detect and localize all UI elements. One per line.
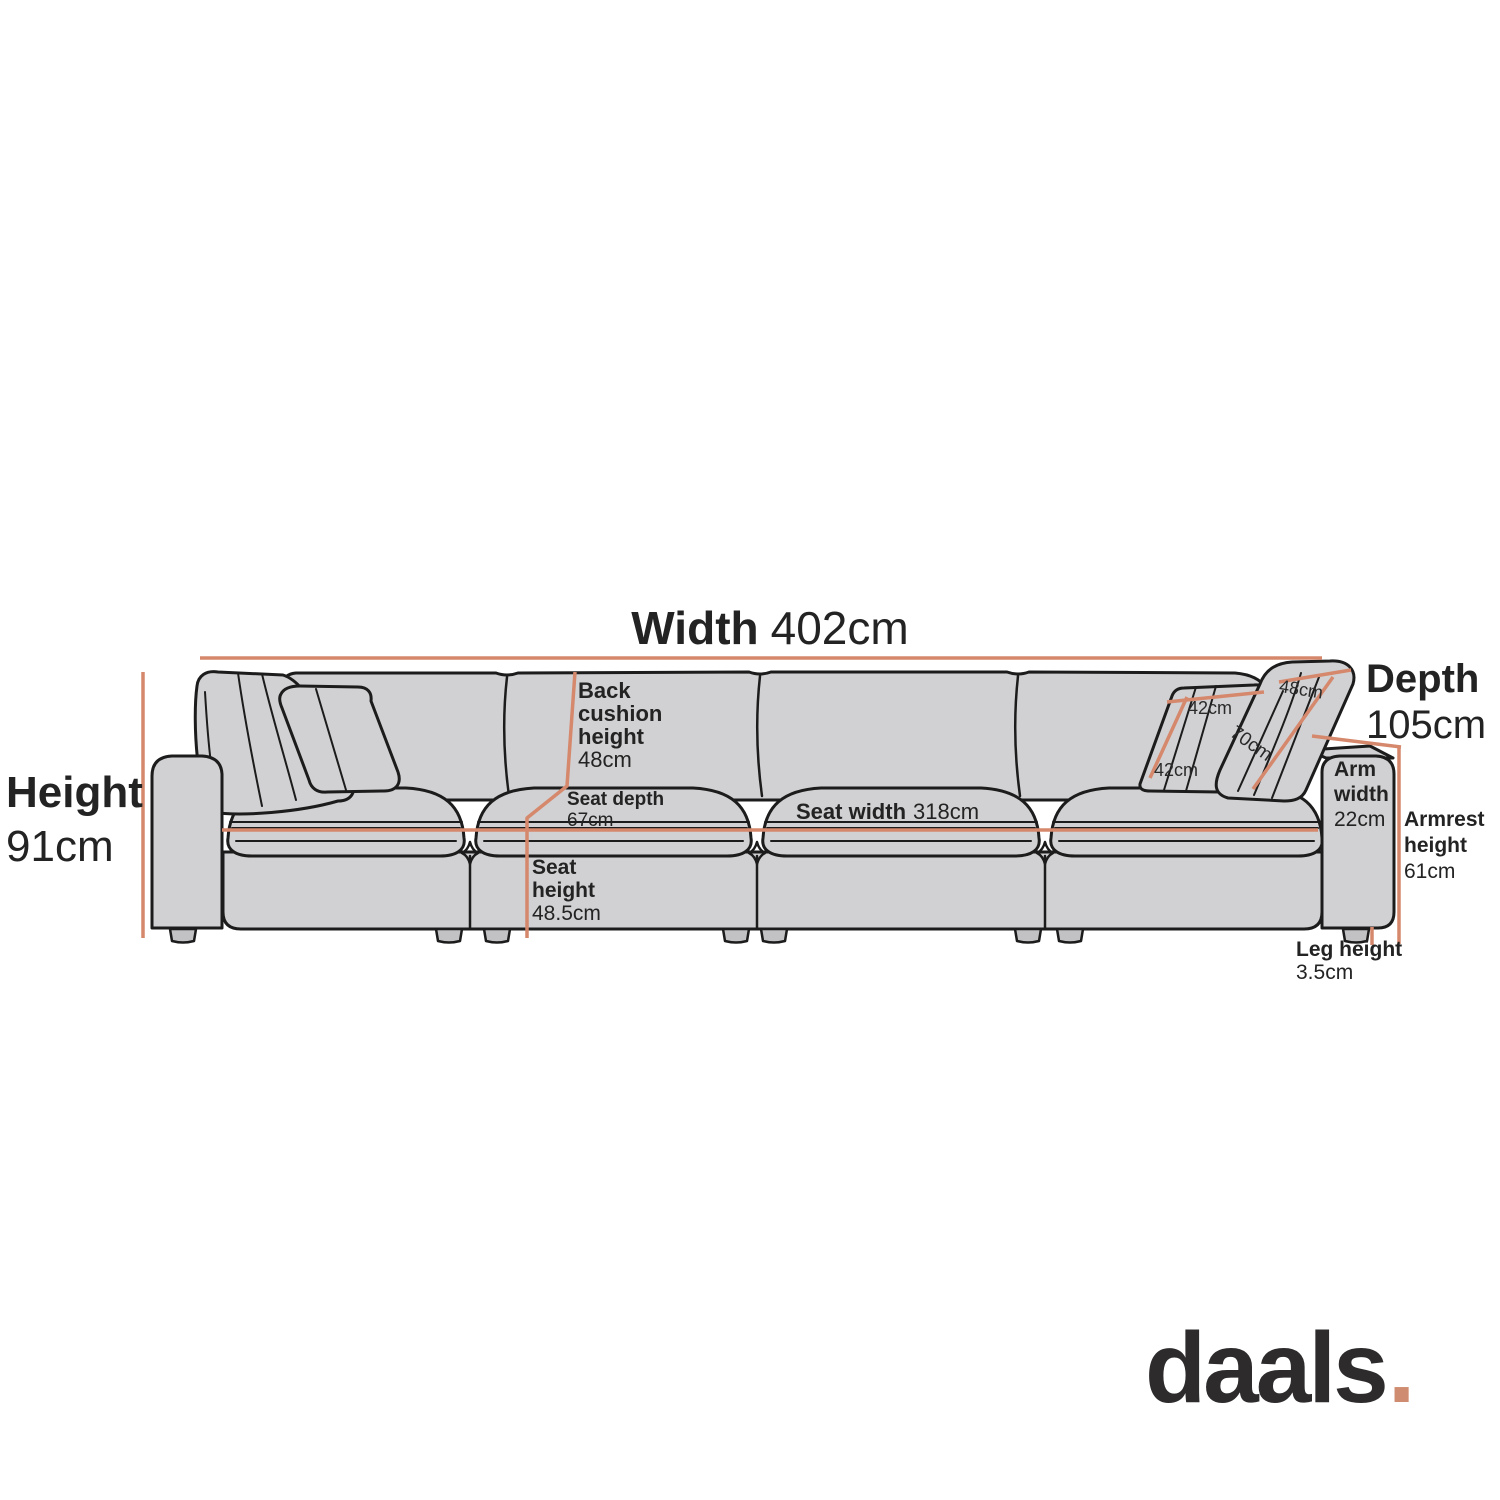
- seat-depth-value: 67cm: [567, 810, 664, 831]
- cushion-inner-top-label: 42cm: [1188, 698, 1232, 719]
- width-label-value: 402cm: [771, 602, 909, 654]
- height-label-name: Height: [6, 766, 143, 820]
- sofa-back-panel: [283, 672, 1272, 800]
- armrest-height-value: 61cm: [1404, 859, 1485, 885]
- daals-logo: daals.: [1145, 1318, 1413, 1418]
- left-arm: [152, 756, 222, 928]
- seat-height-label: Seat height 48.5cm: [532, 856, 601, 925]
- height-label: Height 91cm: [6, 766, 143, 874]
- seat-height-value: 48.5cm: [532, 902, 601, 925]
- arm-width-value: 22cm: [1334, 807, 1389, 832]
- back-cushion-height-label: Back cushion height 48cm: [578, 679, 662, 771]
- seat-width-value: 318cm: [913, 799, 979, 824]
- depth-label-name: Depth: [1366, 656, 1486, 702]
- depth-label-value: 105cm: [1366, 702, 1486, 748]
- armrest-height-label: Armrest height 61cm: [1404, 807, 1485, 885]
- leg-height-label: Leg height 3.5cm: [1296, 938, 1402, 984]
- depth-label: Depth 105cm: [1366, 656, 1486, 748]
- sofa-legs: [170, 929, 1369, 943]
- back-cushion-height-value: 48cm: [578, 748, 662, 771]
- daals-logo-text: daals: [1145, 1312, 1386, 1424]
- dimension-diagram: Width402cm Height 91cm Depth 105cm Back …: [0, 0, 1500, 1500]
- sofa-base: [223, 852, 1322, 929]
- leg-height-value: 3.5cm: [1296, 961, 1402, 984]
- width-label-name: Width: [631, 602, 758, 654]
- arm-width-label: Arm width 22cm: [1334, 757, 1389, 832]
- height-label-value: 91cm: [6, 820, 143, 874]
- cushion-inner-side-label: 42cm: [1154, 760, 1198, 781]
- width-label: Width402cm: [540, 601, 1000, 655]
- seat-width-label: Seat width318cm: [796, 799, 979, 825]
- seat-depth-label: Seat depth 67cm: [567, 789, 664, 831]
- daals-logo-dot: .: [1388, 1312, 1413, 1424]
